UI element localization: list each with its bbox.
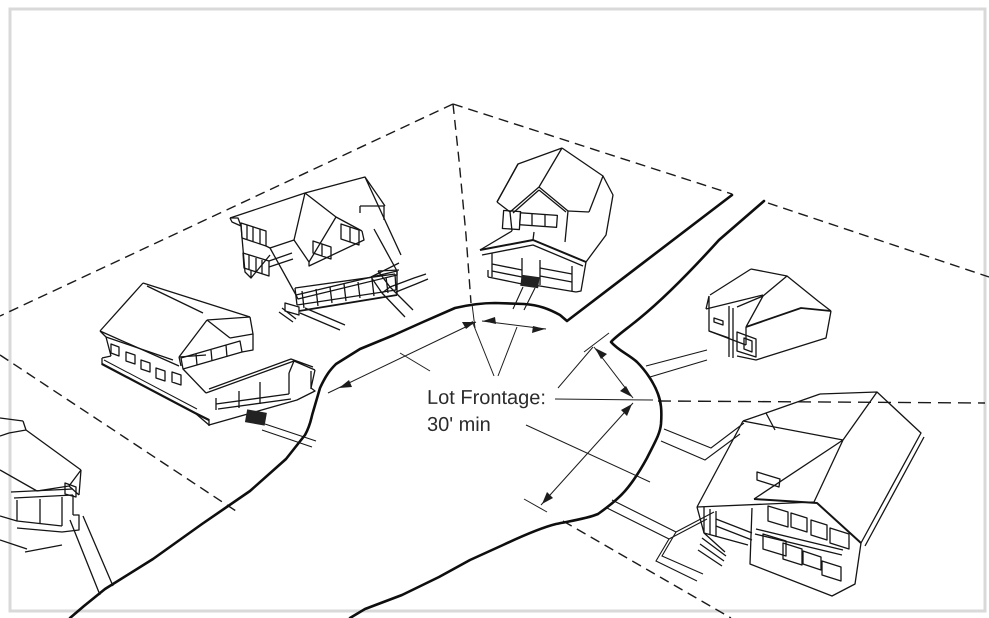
- svg-text:30' min: 30' min: [427, 414, 491, 436]
- svg-text:Lot Frontage:: Lot Frontage:: [427, 387, 546, 409]
